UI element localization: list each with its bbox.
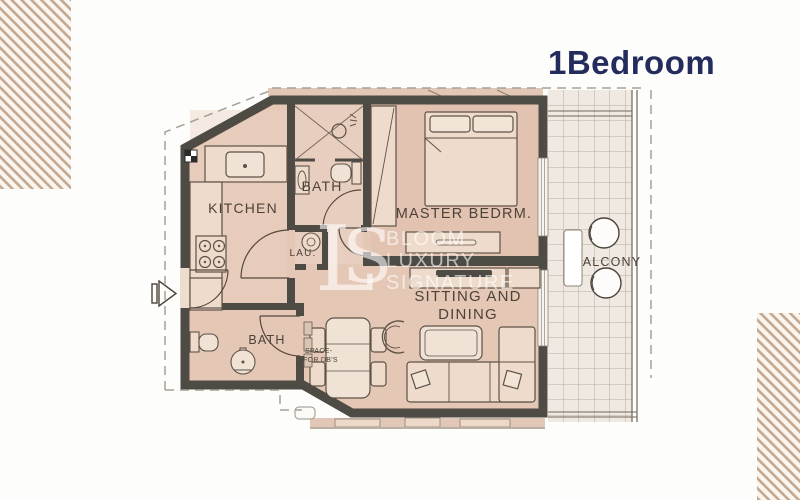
hatch-decoration-top-left [0, 0, 71, 189]
laundry-label: LAU. [289, 248, 316, 259]
hatch-decoration-bottom-right [757, 313, 800, 500]
watermark-line1: BLOOM [386, 228, 466, 250]
master-bedroom-label: MASTER BEDRM. [396, 206, 532, 222]
db-space-label: SPACE- [305, 348, 333, 355]
kitchen-label: KITCHEN [208, 200, 278, 216]
entrance-arrow-icon [152, 281, 176, 306]
sitting-dining-label2: DINING [438, 306, 498, 323]
watermark-line2: LUXURY [386, 250, 476, 272]
balcony-label: ALCONY [583, 255, 642, 269]
shaft-box [185, 150, 197, 162]
watermark-line3: SIGNATURE [386, 272, 515, 294]
page-title: 1Bedroom [548, 44, 715, 82]
floor-plan-page: 1Bedroom [0, 0, 800, 500]
balcony-chair [589, 218, 619, 248]
balcony-chair [591, 268, 621, 298]
bath-label: BATH [301, 178, 342, 194]
bath2-label: BATH [248, 333, 285, 347]
coffee-table [420, 326, 482, 360]
db-space-label2: FOR DB'S [303, 357, 338, 364]
balcony-table [564, 230, 582, 286]
adjacent-unit-top [268, 88, 543, 96]
